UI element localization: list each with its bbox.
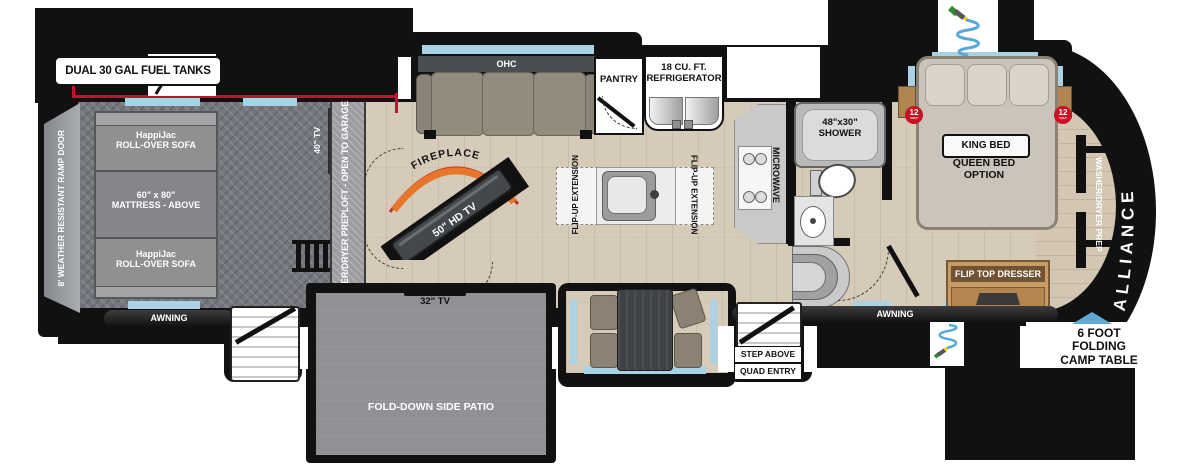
nozzle-body — [938, 350, 945, 355]
dresser-tv — [976, 293, 1020, 305]
queen-option-label: QUEEN BED OPTION — [914, 158, 1054, 188]
ramp-door-label: 8' WEATHER RESISTANT RAMP DOOR — [57, 130, 67, 286]
sofa-foot — [580, 130, 592, 139]
step-above-box: STEP ABOVE — [734, 346, 802, 363]
fireplace-tv-group: FIREPLACE 50" HD TV — [372, 128, 536, 260]
burner — [743, 191, 755, 203]
pantry-label: PANTRY — [596, 75, 642, 86]
window — [570, 300, 577, 364]
sofa-bottom-label1: HappiJac — [96, 249, 216, 259]
garage-tv-label: 40" TV — [313, 127, 323, 154]
mattress-above: 60" x 80" MATTRESS - ABOVE — [94, 170, 218, 241]
patio-label: FOLD-DOWN SIDE PATIO — [331, 402, 531, 414]
closet-rod — [1076, 212, 1086, 268]
refrigerator: 18 CU. FT. REFRIGERATOR — [644, 55, 724, 131]
island-flip-right-label-wrap: FLIP-UP EXTENSION — [678, 170, 708, 220]
spray-port-icon-top — [940, 2, 996, 56]
pillow — [967, 64, 1007, 106]
dinette-chair — [674, 333, 702, 368]
king-bed-label: KING BED — [962, 140, 1011, 151]
awning-right-label: AWNING — [877, 309, 914, 319]
nozzle-body — [955, 11, 964, 18]
dresser-label-band: FLIP TOP DRESSER — [951, 266, 1045, 282]
fuel-line — [72, 95, 398, 98]
ohc-label: OHC — [497, 59, 517, 69]
island-flip-right-label: FLIP-UP EXTENSION — [689, 155, 698, 234]
loft-label-wrap: WASHER/DRYER PREP LOFT - OPEN TO GARAGE — [330, 110, 362, 302]
window — [243, 98, 297, 106]
sofa-top-label1: HappiJac — [96, 130, 216, 140]
window — [125, 98, 200, 106]
ladder-rung — [314, 240, 319, 272]
microwave-label-wrap: MICROWAVE — [768, 138, 784, 212]
fridge-handle — [672, 120, 681, 129]
flip-top-dresser: FLIP TOP DRESSER — [946, 260, 1050, 312]
dinette-chair — [590, 333, 618, 368]
spray-port-icon-bottom — [931, 323, 963, 365]
exterior-cutout — [727, 47, 820, 98]
wall-gap — [398, 57, 411, 99]
garage-ladder — [292, 240, 330, 272]
quad-entry-box: QUAD ENTRY — [734, 363, 802, 380]
mattress-label1: 60" x 80" — [96, 190, 216, 200]
range-stove — [738, 146, 772, 210]
window — [128, 301, 200, 309]
loft-label-line2: LOFT - OPEN TO GARAGE — [341, 101, 351, 212]
twelve-volt-sub: VOLT — [1054, 117, 1072, 120]
fuel-callout-label: DUAL 30 GAL FUEL TANKS — [65, 65, 211, 78]
dinette-chair — [590, 295, 618, 330]
sofa-cushion — [431, 72, 484, 136]
step-above-label: STEP ABOVE — [741, 350, 795, 360]
window — [710, 300, 717, 364]
fuel-line-end — [395, 93, 398, 113]
bath-faucet — [810, 218, 816, 224]
awning-left-label: AWNING — [151, 313, 188, 323]
pillow — [925, 64, 965, 106]
burner — [743, 153, 755, 165]
closet-rod — [1076, 135, 1086, 193]
entry-steps — [230, 306, 300, 382]
shower-label2: SHOWER — [796, 129, 884, 140]
queen-option-line2: OPTION — [914, 170, 1054, 182]
island-flip-left-label-wrap: FLIP-UP EXTENSION — [560, 170, 592, 220]
coiled-hose — [958, 20, 979, 55]
ladder-rung — [305, 240, 310, 272]
kitchen-faucet — [650, 190, 659, 199]
patio-deck — [316, 293, 546, 455]
dinette-table — [617, 289, 673, 371]
shower: 48"x30" SHOWER — [794, 102, 886, 168]
bedroom-step — [792, 262, 826, 292]
rollover-sofa-top: HappiJac ROLL-OVER SOFA — [94, 111, 218, 174]
awning-bar-left: AWNING — [104, 310, 234, 327]
dresser-label: FLIP TOP DRESSER — [955, 269, 1041, 279]
pillow — [1009, 64, 1049, 106]
camp-table-line3: CAMP TABLE — [1026, 354, 1172, 367]
camp-table-line1: 6 FOOT — [1026, 327, 1172, 340]
patio-tv-label-wrap: 32" TV — [404, 297, 466, 309]
garage-tv-label-wrap: 40" TV — [310, 112, 326, 168]
island-flip-left-label: FLIP-UP EXTENSION — [572, 155, 581, 234]
ladder-rung — [296, 240, 301, 272]
sofa-top-label2: ROLL-OVER SOFA — [96, 140, 216, 150]
fridge-handle — [684, 120, 693, 129]
twelve-volt-badge: 12 VOLT — [1054, 106, 1072, 124]
patio-label-wrap: FOLD-DOWN SIDE PATIO — [331, 402, 531, 416]
twelve-volt-badge: 12 VOLT — [905, 106, 923, 124]
twelve-volt-sub: VOLT — [905, 117, 923, 120]
loft-label: WASHER/DRYER PREP LOFT - OPEN TO GARAGE — [341, 101, 351, 310]
ladder-rung — [323, 240, 328, 272]
kitchen-sink — [607, 176, 647, 214]
compartment-slot — [718, 326, 734, 372]
coiled-hose — [940, 325, 957, 348]
burner — [755, 191, 767, 203]
fuel-callout-box: DUAL 30 GAL FUEL TANKS — [54, 56, 222, 86]
sofa-cushion — [533, 72, 586, 136]
silhouette-bottom-right — [945, 368, 1135, 460]
rollover-sofa-bottom: HappiJac ROLL-OVER SOFA — [94, 237, 218, 299]
queen-option-line1: QUEEN BED — [914, 158, 1054, 170]
brand-text: ALLIANCE — [1110, 186, 1138, 312]
sofa-back — [96, 286, 216, 297]
ramp-door-label-wrap: 8' WEATHER RESISTANT RAMP DOOR — [44, 108, 80, 308]
floorplan-canvas: 8' WEATHER RESISTANT RAMP DOOR HappiJac … — [0, 0, 1200, 476]
quad-entry-label: QUAD ENTRY — [740, 367, 796, 377]
window — [422, 45, 594, 54]
fridge-label2: REFRIGERATOR — [646, 74, 722, 85]
burner — [755, 153, 767, 165]
mattress-label2: MATTRESS - ABOVE — [96, 200, 216, 210]
overhead-cabinet: OHC — [418, 56, 595, 72]
patio-tv — [404, 286, 466, 296]
king-bed-label-box: KING BED — [942, 134, 1030, 158]
sofa-cushion — [482, 72, 535, 136]
compartment-slot — [804, 326, 817, 372]
camp-table-line2: FOLDING — [1026, 340, 1172, 353]
sofa-bottom-label2: ROLL-OVER SOFA — [96, 259, 216, 269]
microwave-label: MICROWAVE — [771, 147, 781, 203]
patio-tv-label: 32" TV — [404, 297, 466, 308]
svg-text:ALLIANCE: ALLIANCE — [1110, 186, 1138, 312]
camp-table-arrow-icon — [1072, 312, 1112, 324]
sofa-back — [96, 113, 216, 126]
